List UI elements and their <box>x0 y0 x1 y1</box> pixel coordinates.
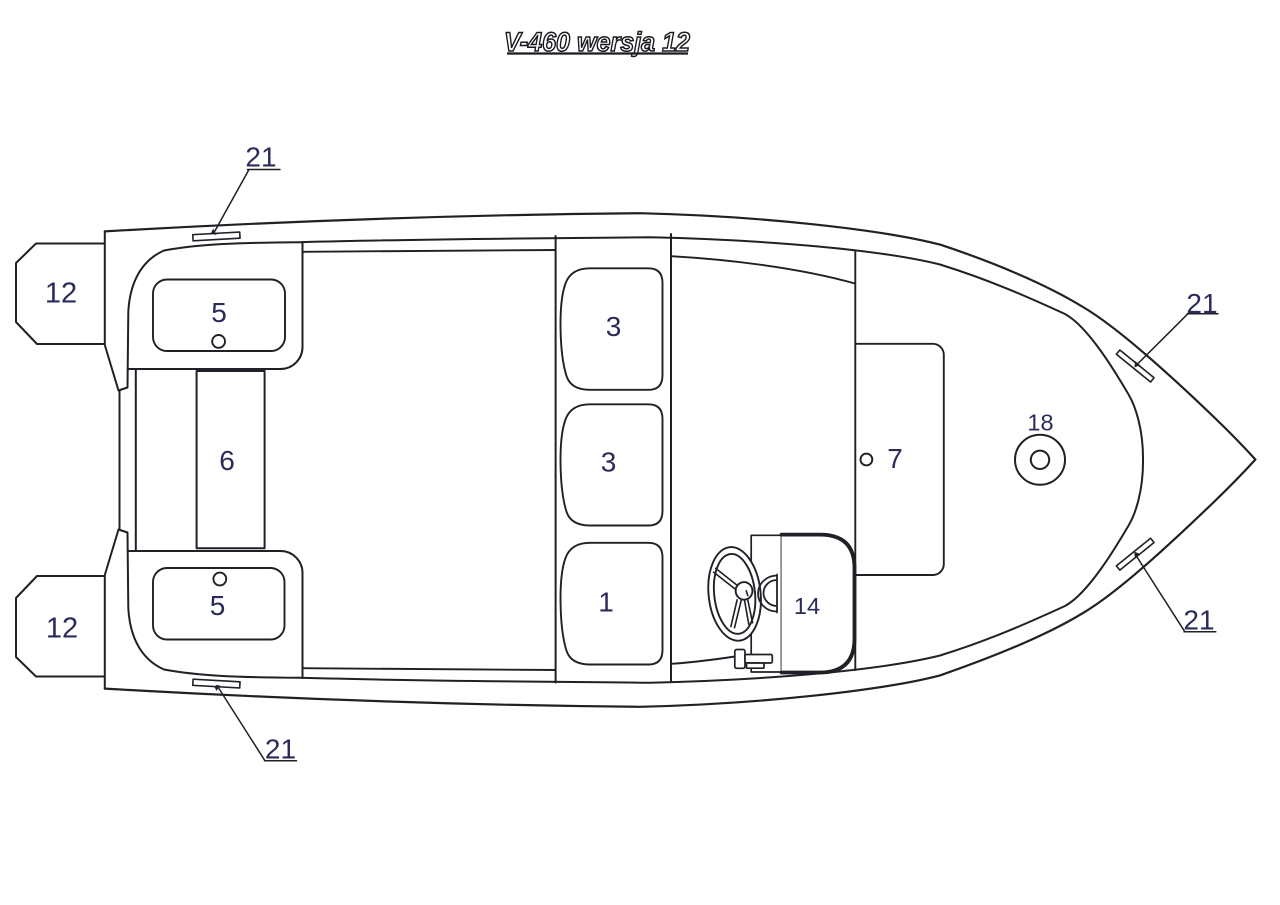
svg-text:12: 12 <box>46 613 78 645</box>
svg-text:21: 21 <box>1183 605 1214 636</box>
svg-text:5: 5 <box>210 590 226 621</box>
svg-text:21: 21 <box>1186 288 1217 319</box>
svg-text:1: 1 <box>598 587 614 618</box>
svg-text:7: 7 <box>887 443 903 474</box>
svg-text:3: 3 <box>601 447 617 478</box>
svg-text:5: 5 <box>211 297 227 328</box>
svg-text:21: 21 <box>265 734 296 765</box>
svg-text:18: 18 <box>1027 410 1053 436</box>
svg-text:14: 14 <box>794 593 820 619</box>
svg-text:3: 3 <box>606 311 622 342</box>
svg-text:12: 12 <box>45 278 77 310</box>
svg-text:6: 6 <box>219 445 235 476</box>
svg-text:21: 21 <box>245 142 276 173</box>
